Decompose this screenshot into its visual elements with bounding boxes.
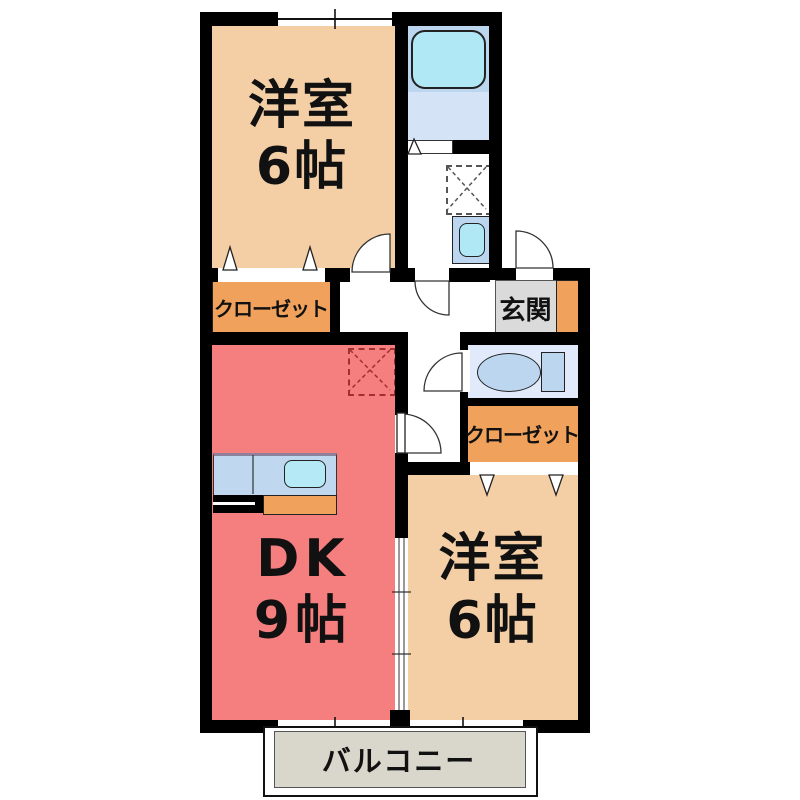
door-swing-dk-icon	[402, 414, 441, 453]
folding-door-triangle-icon	[480, 475, 494, 495]
door-swing-entrance-icon	[516, 231, 553, 268]
entrance-label-text: 玄関	[499, 290, 551, 327]
folding-door-triangle-icon	[223, 247, 237, 270]
room-name: DK	[256, 529, 349, 590]
balcony-label: バルコニー	[274, 731, 524, 786]
room-size: 9帖	[254, 591, 352, 652]
folding-door-triangle-icon	[408, 139, 421, 154]
folding-door-triangle-icon	[549, 475, 563, 495]
dk-label: DK 9帖	[208, 518, 398, 663]
plan-symbols-overlay	[0, 0, 800, 800]
closet-label-text: クローゼット	[214, 293, 328, 322]
bedroom-top-label: 洋室 6帖	[212, 62, 392, 212]
closet-top-label: クローゼット	[212, 280, 330, 334]
floorplan-canvas: 洋室 6帖 クローゼット 玄関 クローゼット DK 9帖 洋室 6帖 バルコニー	[0, 0, 800, 800]
room-name: 洋室	[438, 529, 546, 590]
door-swing-washroom-icon	[415, 281, 449, 315]
bedroom-bottom-label: 洋室 6帖	[405, 518, 580, 663]
door-swing-bedroom-top-icon	[352, 234, 390, 272]
door-leaf-dk-icon	[397, 413, 405, 453]
room-size: 6帖	[446, 591, 538, 652]
closet-right-label: クローゼット	[466, 404, 578, 462]
closet-label-text: クローゼット	[465, 419, 579, 448]
entrance-label: 玄関	[495, 280, 556, 336]
balcony-label-text: バルコニー	[322, 738, 476, 780]
folding-door-triangle-icon	[303, 247, 317, 270]
door-swing-toilet-icon	[424, 353, 462, 391]
room-size: 6帖	[256, 137, 348, 198]
room-name: 洋室	[248, 76, 356, 137]
